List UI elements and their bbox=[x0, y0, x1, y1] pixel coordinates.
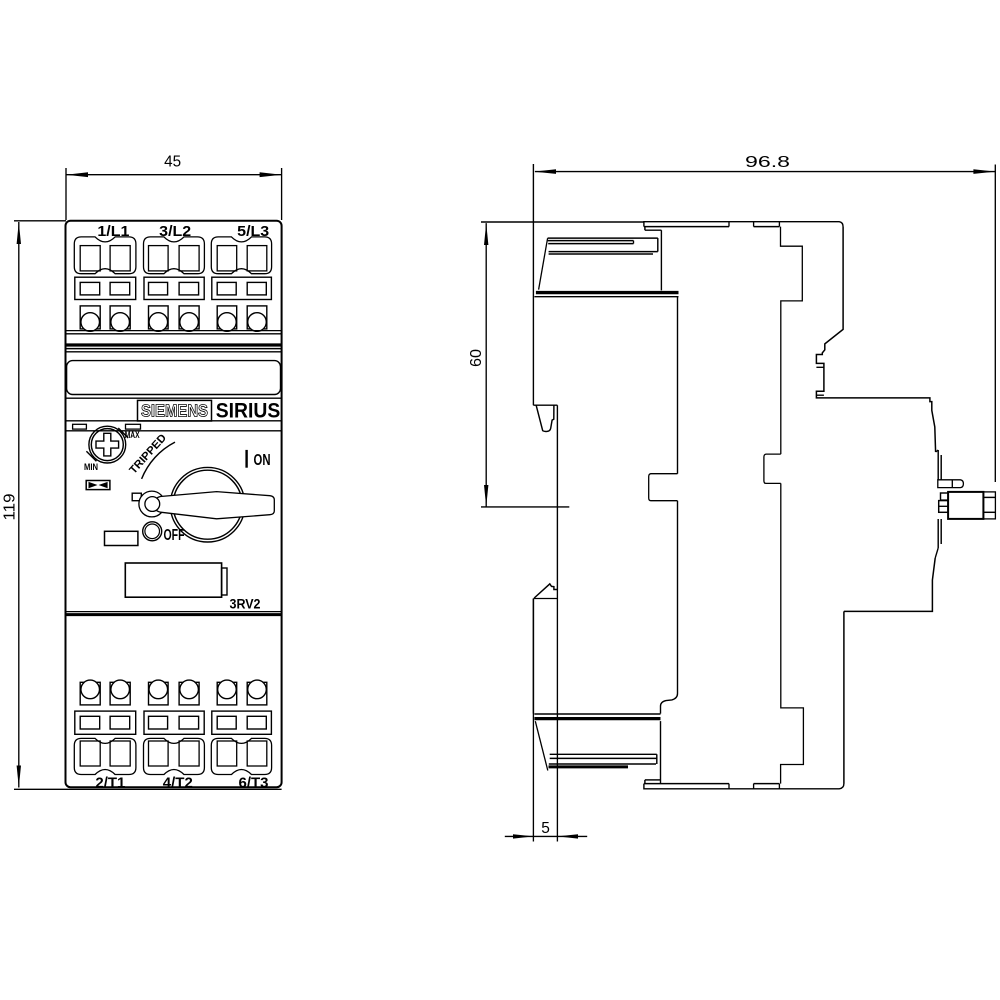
svg-text:6/T3: 6/T3 bbox=[239, 775, 269, 791]
svg-text:SIEMENS: SIEMENS bbox=[141, 400, 208, 420]
svg-text:96.8: 96.8 bbox=[745, 154, 790, 171]
svg-text:OFF: OFF bbox=[164, 527, 185, 544]
svg-text:5/L3: 5/L3 bbox=[237, 223, 269, 240]
svg-text:4/T2: 4/T2 bbox=[163, 775, 193, 791]
svg-text:60: 60 bbox=[468, 349, 485, 367]
svg-text:45: 45 bbox=[164, 154, 181, 171]
svg-text:5: 5 bbox=[541, 820, 550, 837]
svg-text:MIN: MIN bbox=[84, 462, 98, 473]
svg-text:MAX: MAX bbox=[125, 430, 140, 441]
svg-text:2/T1: 2/T1 bbox=[95, 775, 125, 791]
svg-text:119: 119 bbox=[2, 494, 19, 521]
svg-text:SIRIUS: SIRIUS bbox=[216, 400, 281, 423]
svg-text:3RV2: 3RV2 bbox=[230, 596, 261, 611]
svg-text:ON: ON bbox=[254, 452, 271, 469]
